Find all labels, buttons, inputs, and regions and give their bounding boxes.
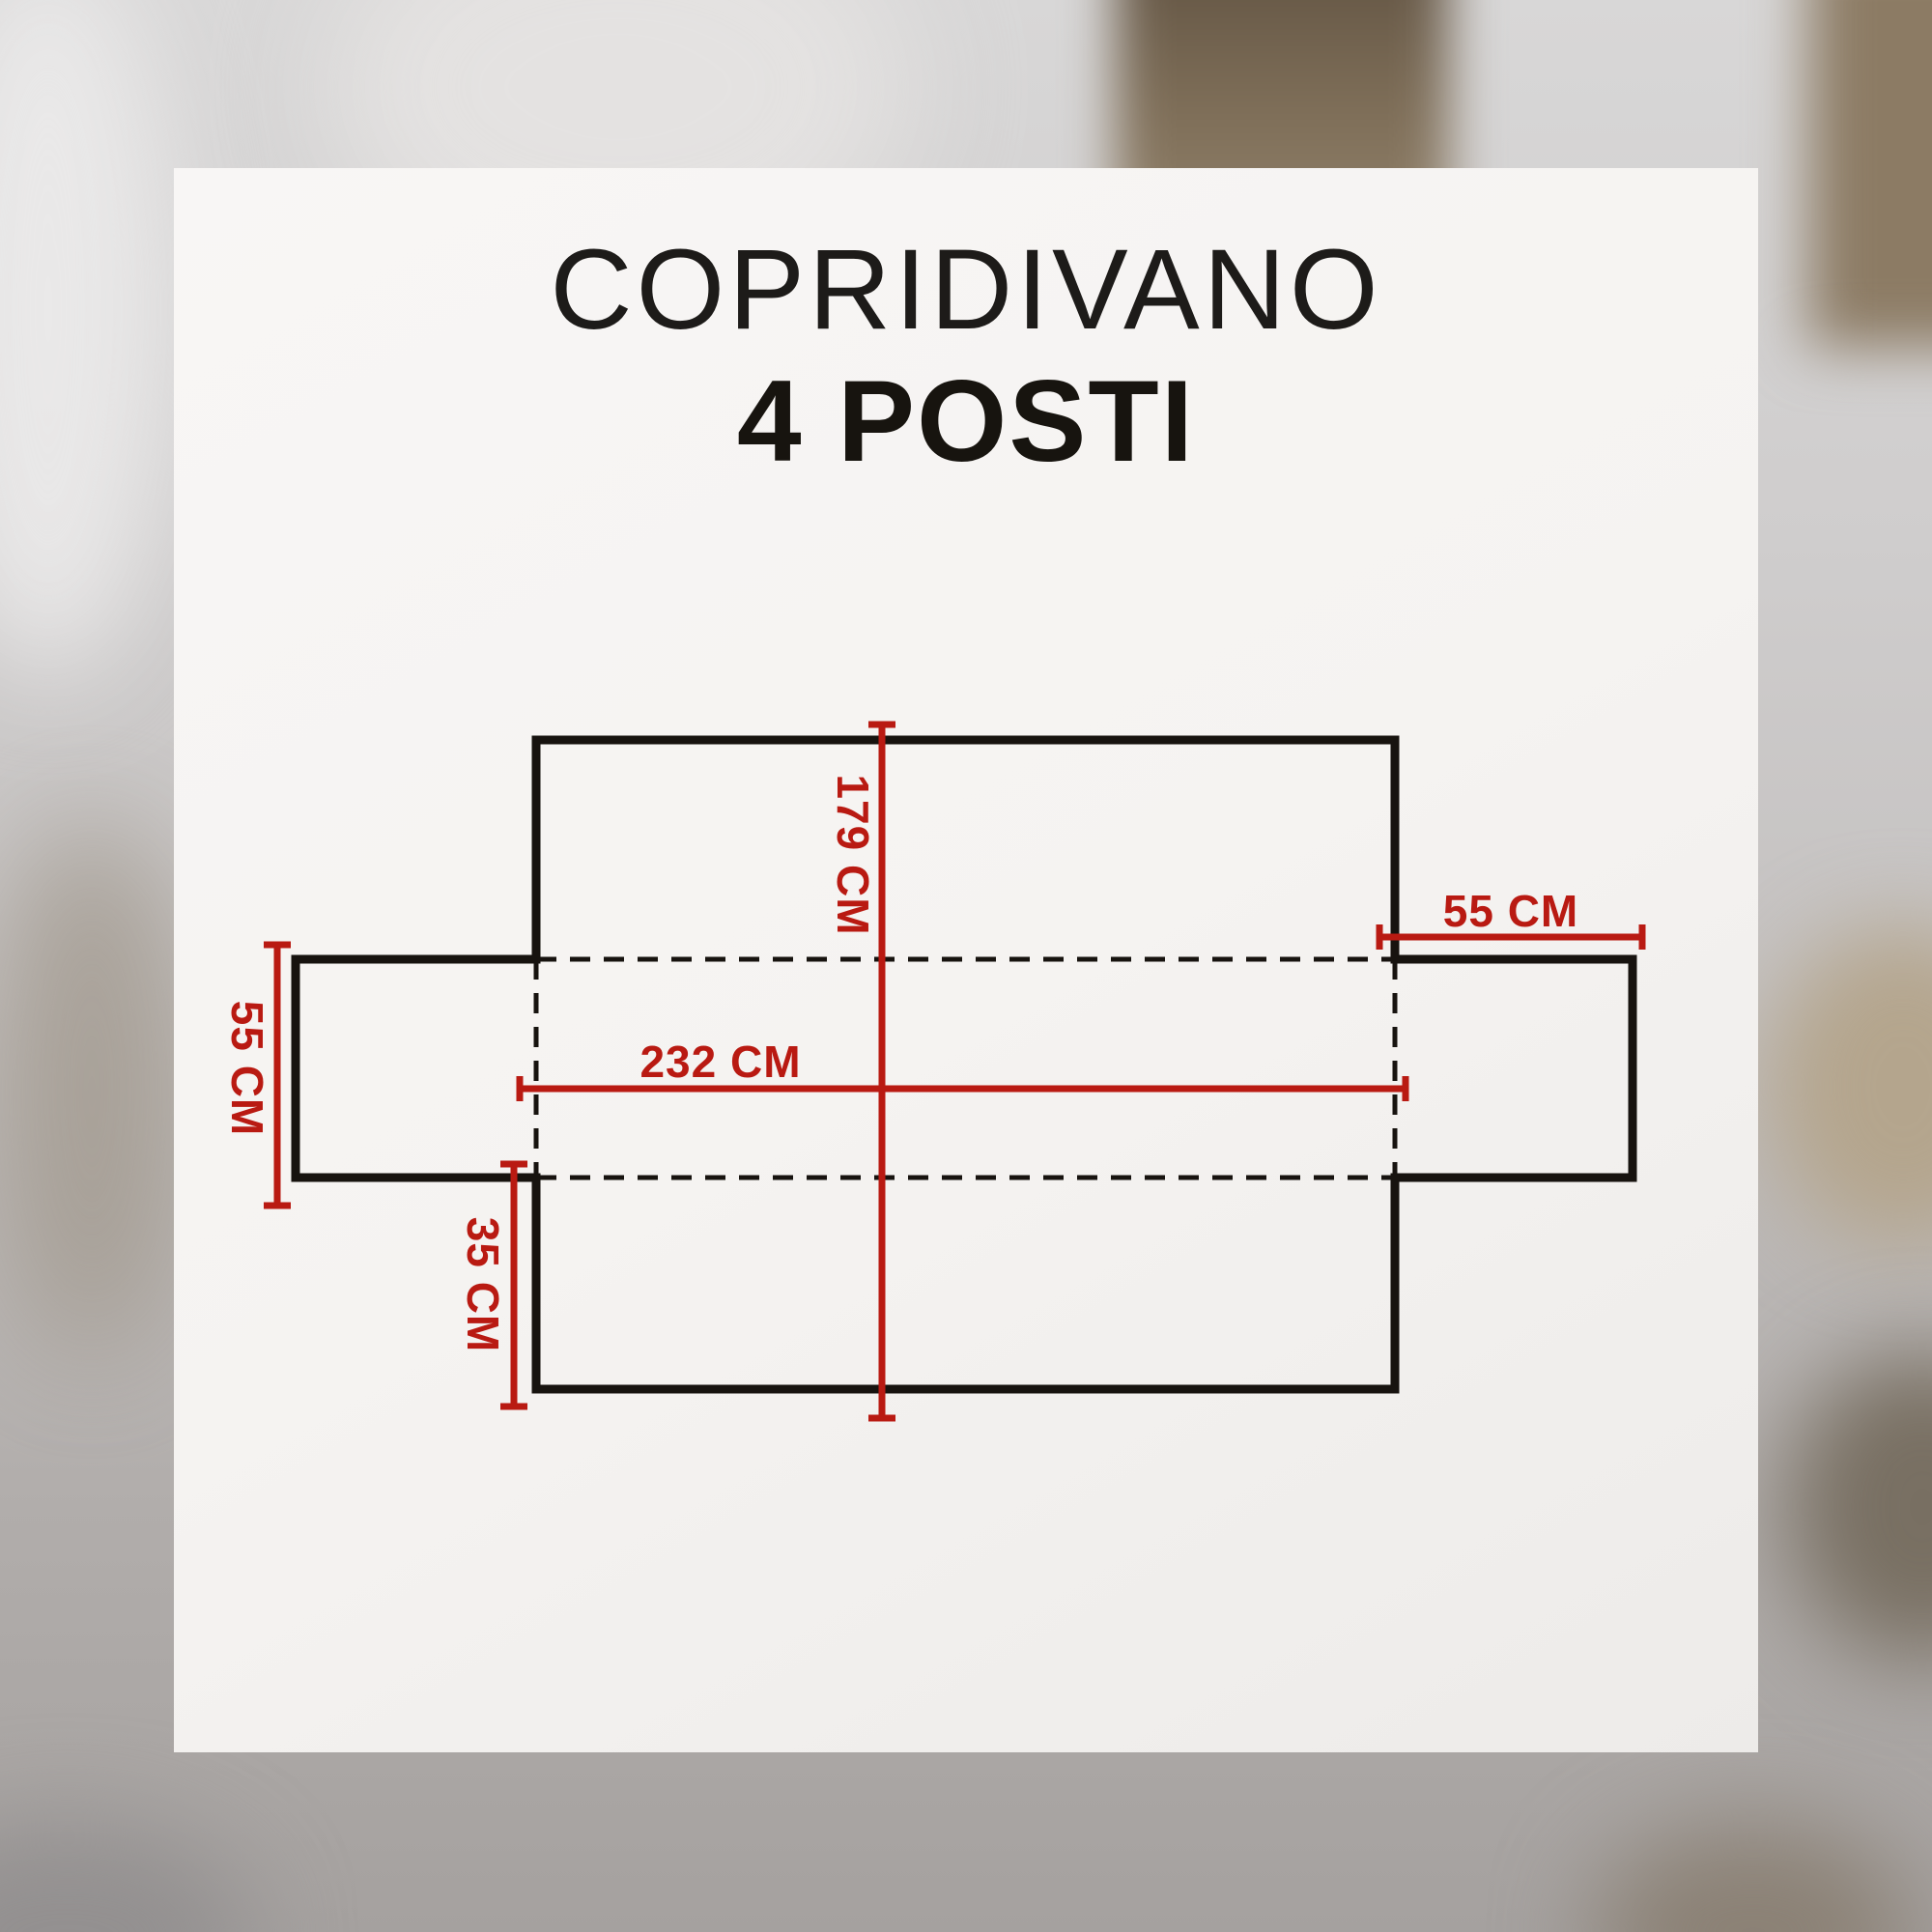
sofa-cover-dimension-diagram: 179 CM 232 CM 55 CM 55 CM 35 CM <box>0 0 1932 1932</box>
dimension-total-width: 232 CM <box>520 1037 1406 1101</box>
dimension-label-front-skirt: 35 CM <box>458 1217 508 1352</box>
scene: COPRIDIVANO 4 POSTI 179 CM 232 CM 55 CM … <box>0 0 1932 1932</box>
dimension-right-armrest-flap: 55 CM <box>1379 886 1642 950</box>
dimension-label-total-height: 179 CM <box>828 774 878 935</box>
dimension-label-total-width: 232 CM <box>639 1037 801 1087</box>
dimension-front-skirt: 35 CM <box>458 1164 527 1406</box>
dimension-label-right-armrest-flap: 55 CM <box>1443 886 1578 936</box>
dimension-label-left-armrest-flap: 55 CM <box>222 1001 272 1136</box>
dimension-left-armrest-flap: 55 CM <box>222 945 291 1206</box>
dimension-total-height: 179 CM <box>828 724 895 1418</box>
